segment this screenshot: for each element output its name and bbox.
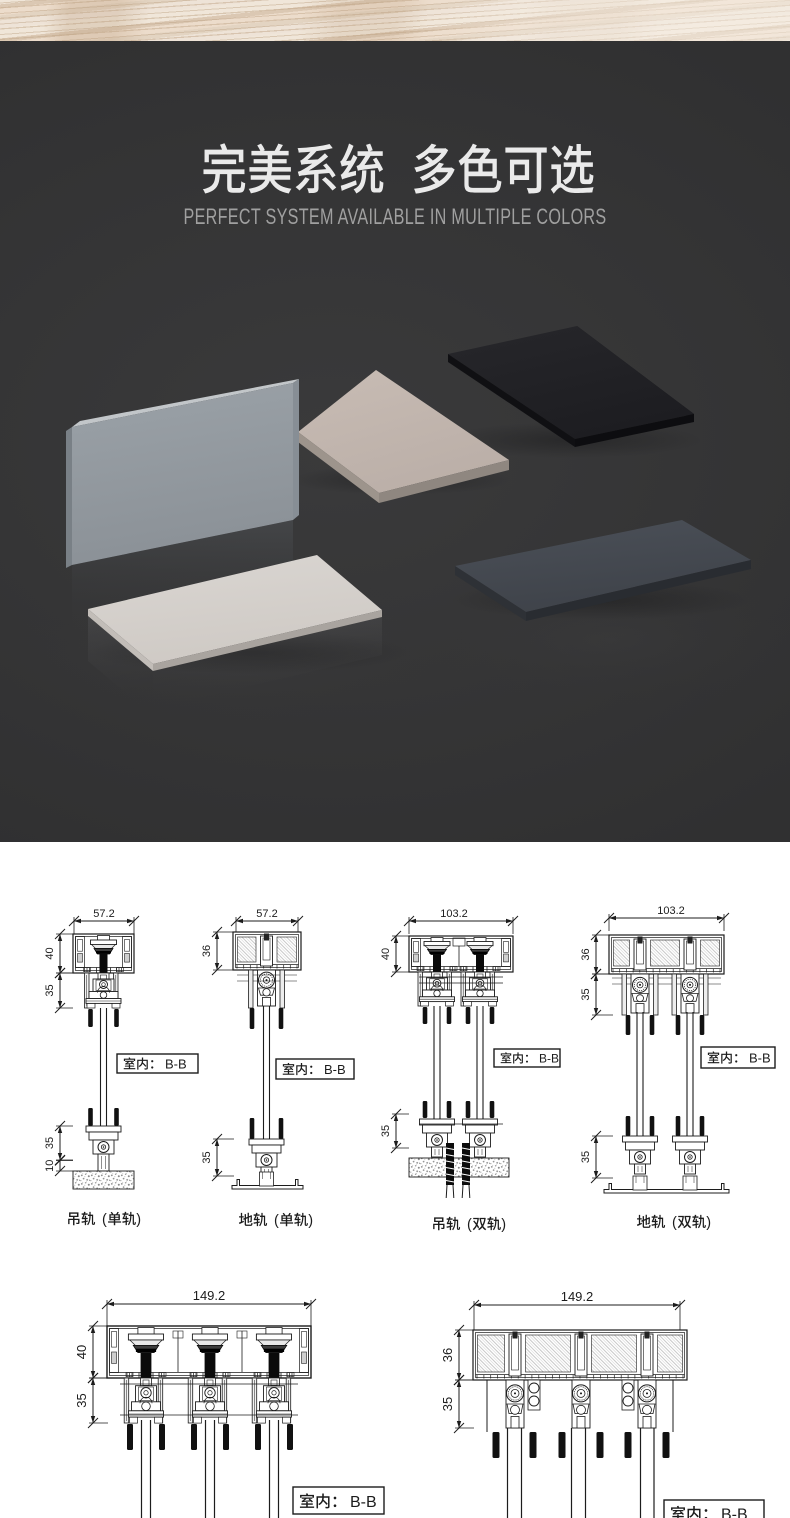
svg-text:35: 35	[74, 1393, 89, 1407]
svg-text:35: 35	[580, 988, 592, 1000]
svg-text:B-B: B-B	[165, 1057, 187, 1072]
svg-text:103.2: 103.2	[657, 905, 685, 917]
svg-text:35: 35	[580, 1151, 592, 1163]
svg-text:B-B: B-B	[539, 1052, 559, 1066]
svg-text:(: (	[102, 1212, 107, 1228]
svg-text:36: 36	[201, 945, 213, 957]
svg-text:B-B: B-B	[749, 1051, 771, 1066]
svg-text:(: (	[672, 1215, 677, 1231]
svg-text:(: (	[467, 1217, 472, 1233]
svg-text:35: 35	[44, 984, 56, 996]
svg-text:36: 36	[580, 948, 592, 960]
svg-text:57.2: 57.2	[93, 908, 114, 920]
svg-text:): )	[501, 1217, 506, 1233]
svg-text:35: 35	[44, 1137, 56, 1149]
svg-text:): )	[308, 1213, 313, 1229]
svg-text:35: 35	[201, 1151, 213, 1163]
svg-text:B-B: B-B	[324, 1062, 346, 1077]
svg-text:35: 35	[380, 1125, 392, 1137]
svg-text:57.2: 57.2	[256, 908, 277, 920]
svg-text:103.2: 103.2	[440, 908, 468, 920]
svg-text:): )	[706, 1215, 711, 1231]
svg-text:36: 36	[440, 1348, 455, 1362]
svg-text:): )	[136, 1212, 141, 1228]
svg-text:(: (	[274, 1213, 279, 1229]
svg-text:10: 10	[44, 1160, 56, 1172]
svg-text:40: 40	[74, 1345, 89, 1359]
svg-text:40: 40	[44, 947, 56, 959]
svg-text:B-B: B-B	[350, 1494, 377, 1511]
svg-text:35: 35	[440, 1397, 455, 1411]
svg-text:40: 40	[380, 948, 392, 960]
svg-text:B-B: B-B	[721, 1507, 748, 1518]
svg-text:149.2: 149.2	[561, 1289, 594, 1304]
svg-text:149.2: 149.2	[193, 1288, 226, 1303]
